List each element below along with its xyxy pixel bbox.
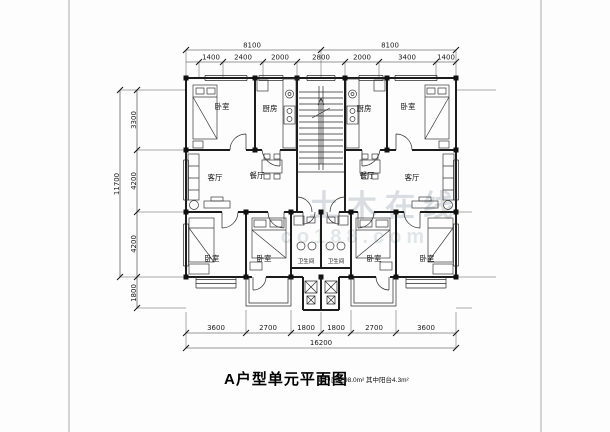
dim-label: 1800	[297, 324, 315, 332]
dim-label: 2000	[353, 54, 371, 62]
watermark: 土木在线 co188.com	[281, 190, 461, 248]
dim-label: 3600	[207, 324, 225, 332]
room-label: 卧室	[420, 253, 435, 263]
room-label: 餐厅	[360, 171, 375, 180]
drawing-subtitle: 每户面积98.0m² 其中阳台4.3m²	[318, 375, 409, 384]
paper-border	[69, 0, 541, 432]
dim-label: 2000	[271, 54, 289, 62]
dim-label: 8100	[243, 42, 261, 50]
dim-label: 11700	[113, 173, 121, 195]
dim-label: 4200	[130, 172, 138, 190]
dim-label: 1400	[202, 54, 220, 62]
grid-extensions-right	[456, 90, 496, 308]
room-label: 客厅	[405, 172, 420, 182]
dim-label: 1800	[130, 284, 138, 302]
dimension-top: 8100 8100 1400 2400 2000 2800 2000 3400 …	[183, 42, 459, 79]
stair-steps	[297, 86, 345, 172]
room-label: 卧室	[215, 101, 230, 111]
room-label: 卫生间	[328, 257, 345, 265]
room-label: 卫生间	[298, 257, 315, 265]
room-label: 卧室	[401, 101, 416, 111]
room-label: 厨房	[357, 103, 372, 113]
title-block: A户型单元平面图 每户面积98.0m² 其中阳台4.3m²	[224, 370, 409, 388]
floor-plan-svg: 土木在线 co188.com 8100 8100 1400 2400 2000 …	[0, 0, 610, 432]
dim-label: 16200	[310, 339, 332, 347]
dimension-bottom: 3600 2700 1800 1800 2700 3600 16200	[183, 310, 459, 351]
dim-label: 4200	[130, 235, 138, 253]
dim-label: 2700	[365, 324, 383, 332]
dim-label: 1800	[327, 324, 345, 332]
dim-label: 2700	[259, 324, 277, 332]
dim-label: 3300	[130, 111, 138, 129]
room-label: 卧室	[257, 253, 272, 263]
drawing-sheet: 土木在线 co188.com 8100 8100 1400 2400 2000 …	[0, 0, 610, 432]
room-label: 客厅	[208, 172, 223, 182]
dim-label: 3400	[398, 54, 416, 62]
bay-window	[196, 277, 236, 288]
room-label: 厨房	[263, 103, 278, 113]
dim-label: 1400	[437, 54, 455, 62]
dim-label: 8100	[381, 42, 399, 50]
room-label: 餐厅	[250, 171, 265, 180]
room-label: 卧室	[367, 253, 382, 263]
entry-porch	[303, 277, 339, 310]
dim-label: 3600	[417, 324, 435, 332]
dimension-left: 11700 3300 4200 4200 1800	[113, 87, 186, 311]
room-label: 卧室	[205, 253, 220, 263]
watermark-subtext: co188.com	[281, 226, 429, 248]
dim-label: 2400	[234, 54, 252, 62]
dim-label: 2800	[312, 54, 330, 62]
